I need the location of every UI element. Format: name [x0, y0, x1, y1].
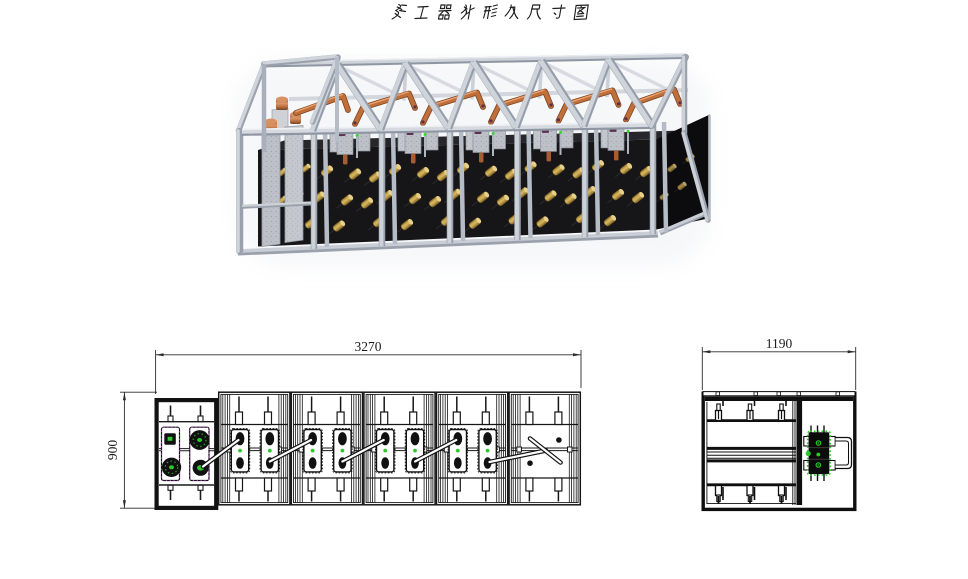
svg-text:3270: 3270	[355, 339, 382, 354]
svg-text:900: 900	[105, 440, 120, 461]
svg-text:1190: 1190	[766, 336, 793, 351]
